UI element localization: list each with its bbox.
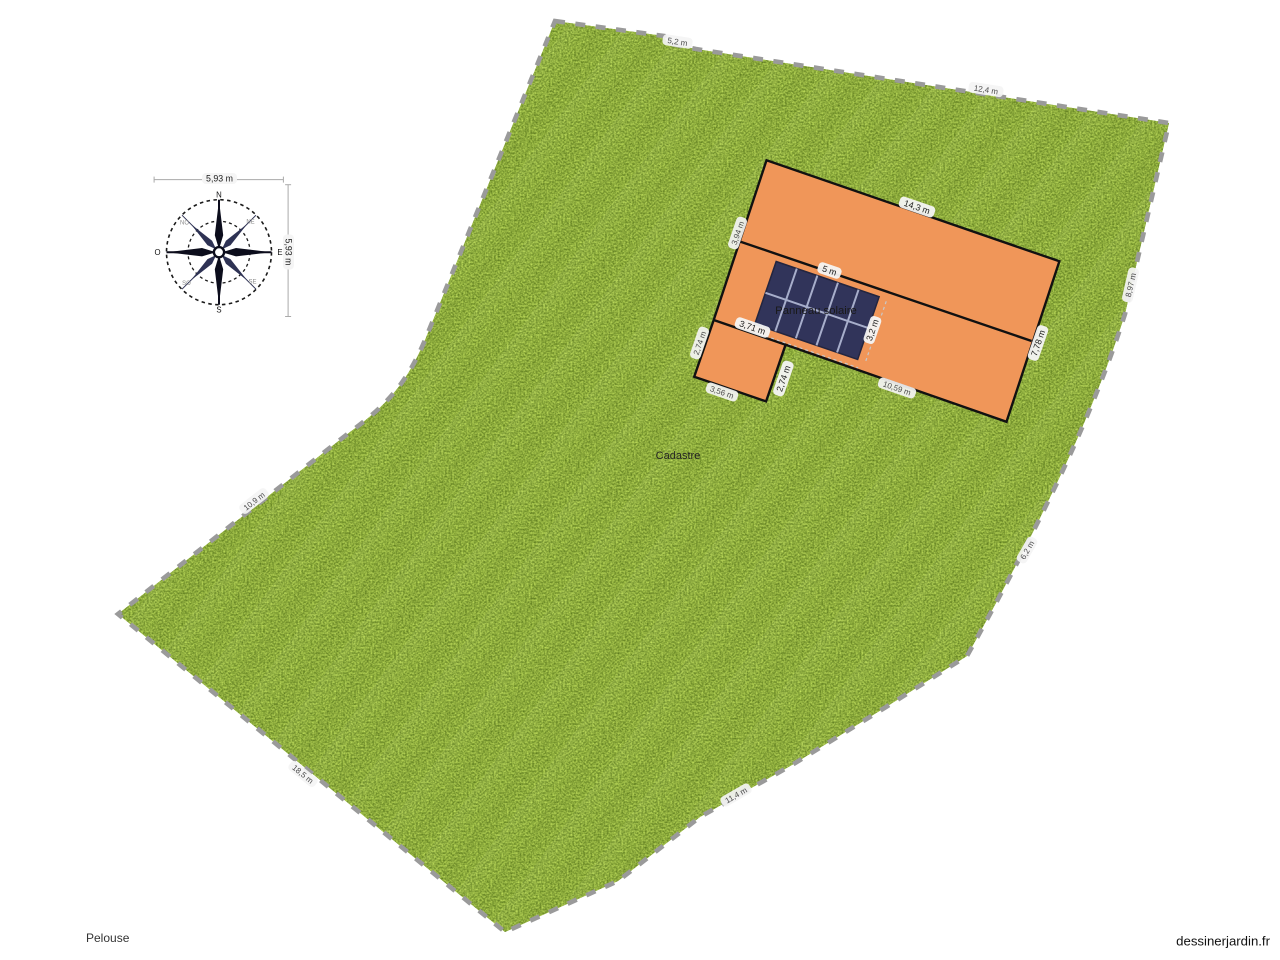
svg-text:dessinerjardin.fr: dessinerjardin.fr	[1176, 934, 1270, 949]
svg-text:SO: SO	[182, 281, 191, 287]
svg-text:N: N	[216, 191, 222, 200]
svg-text:NE: NE	[246, 220, 254, 226]
svg-text:E: E	[277, 248, 282, 257]
svg-text:Pelouse: Pelouse	[86, 931, 130, 945]
svg-text:S: S	[216, 306, 221, 315]
svg-text:NO: NO	[180, 221, 189, 227]
svg-text:SE: SE	[248, 280, 256, 286]
svg-text:Panneau solaire: Panneau solaire	[775, 305, 857, 317]
svg-text:Cadastre: Cadastre	[656, 450, 701, 462]
svg-text:O: O	[154, 248, 160, 257]
svg-text:5,93 m: 5,93 m	[284, 239, 294, 266]
svg-text:5,93 m: 5,93 m	[206, 174, 233, 184]
